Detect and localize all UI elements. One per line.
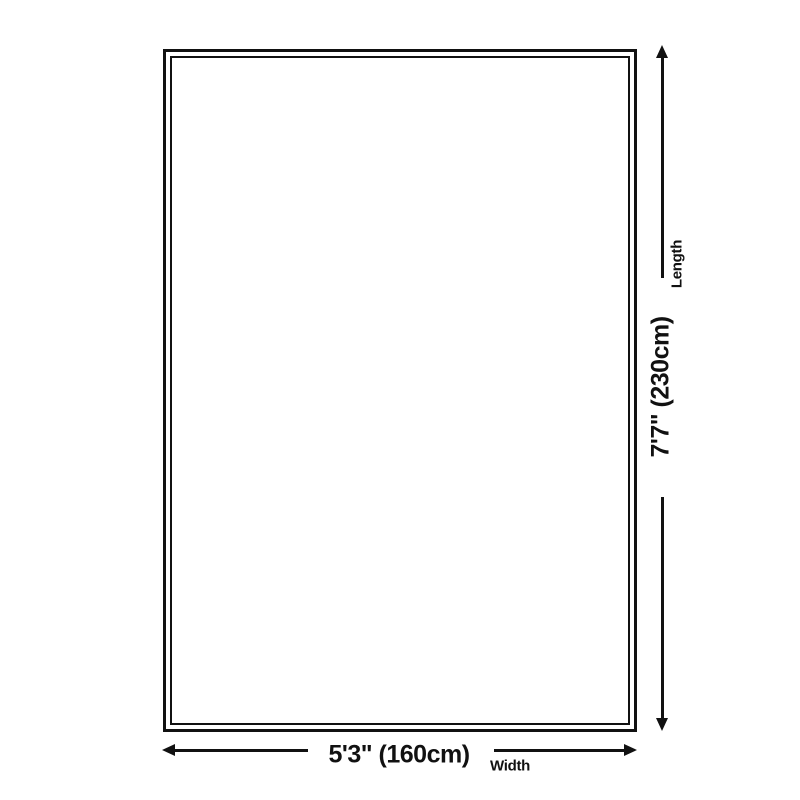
rug-outline-inner	[170, 56, 630, 725]
width-axis-label: Width	[490, 759, 530, 774]
length-axis-label: Length	[670, 240, 685, 288]
length-arrow-upper-line	[661, 57, 664, 278]
length-arrow-lower-line	[661, 497, 664, 719]
rug-dimension-diagram: 7'7" (230cm) Length 5'3" (160cm) Width	[0, 0, 800, 800]
width-arrow-left-line	[175, 749, 308, 752]
rug-outline	[163, 49, 637, 732]
width-arrow-left-head-icon	[162, 744, 175, 756]
width-arrow-right-head-icon	[624, 744, 637, 756]
width-value-label: 5'3" (160cm)	[328, 743, 469, 768]
width-arrow-right-line	[494, 749, 624, 752]
length-value-label: 7'7" (230cm)	[649, 316, 674, 457]
length-arrow-down-head-icon	[656, 718, 668, 731]
